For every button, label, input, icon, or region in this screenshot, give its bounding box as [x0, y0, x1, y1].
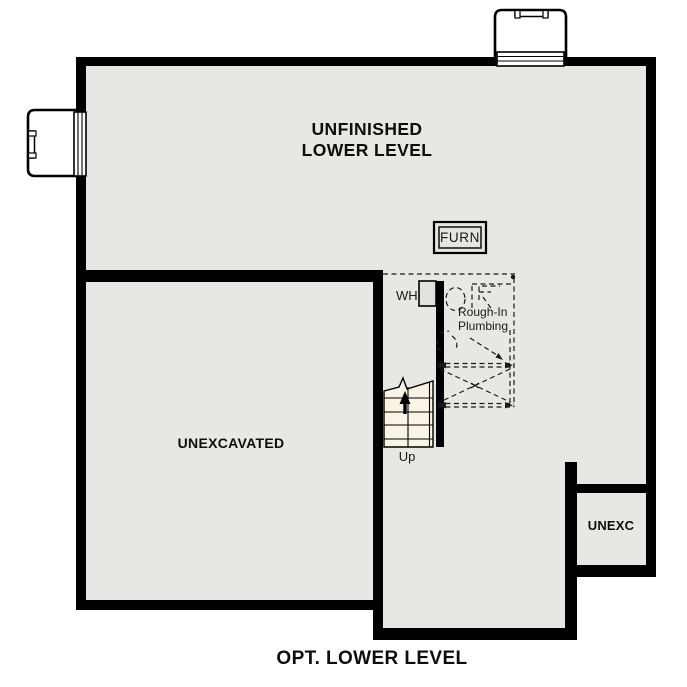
- plumbing-label-line2: Plumbing: [458, 319, 508, 333]
- floor-plan-graphics: [0, 0, 687, 687]
- water-heater-box: [419, 281, 436, 306]
- main-room-label-line2: LOWER LEVEL: [302, 140, 433, 160]
- water-heater-label: WH: [396, 288, 418, 303]
- wall-unexcavated-top: [76, 270, 383, 282]
- wall-right: [646, 57, 656, 577]
- wall-unexc-bottom: [565, 565, 656, 577]
- main-room-label: UNFINISHEDLOWER LEVEL: [302, 119, 433, 162]
- stairs-up-label: Up: [399, 449, 416, 464]
- wall-hall-left: [373, 270, 383, 640]
- left-window: [74, 112, 86, 176]
- unexcavated-label: UNEXCAVATED: [178, 435, 285, 451]
- left-window-well: [28, 110, 78, 176]
- unexc-label: UNEXC: [588, 518, 635, 533]
- top-window: [497, 52, 564, 66]
- top-window-well: [495, 10, 566, 58]
- furnace-label: FURN: [440, 230, 480, 245]
- wall-top: [76, 57, 656, 66]
- main-room-label-line1: UNFINISHED: [312, 119, 423, 139]
- wall-hall-bottom: [373, 628, 577, 640]
- plumbing-label-line1: Rough-In: [458, 305, 507, 319]
- floor-plan: UNFINISHEDLOWER LEVEL UNEXCAVATED UNEXC …: [0, 0, 687, 687]
- boundary-dot: [511, 275, 515, 279]
- plan-title: OPT. LOWER LEVEL: [276, 648, 467, 670]
- staircase: [384, 378, 433, 447]
- wall-unexcavated-bottom: [76, 600, 383, 610]
- wall-unexc-top: [565, 484, 656, 493]
- rough-in-plumbing-label: Rough-InPlumbing: [458, 306, 508, 333]
